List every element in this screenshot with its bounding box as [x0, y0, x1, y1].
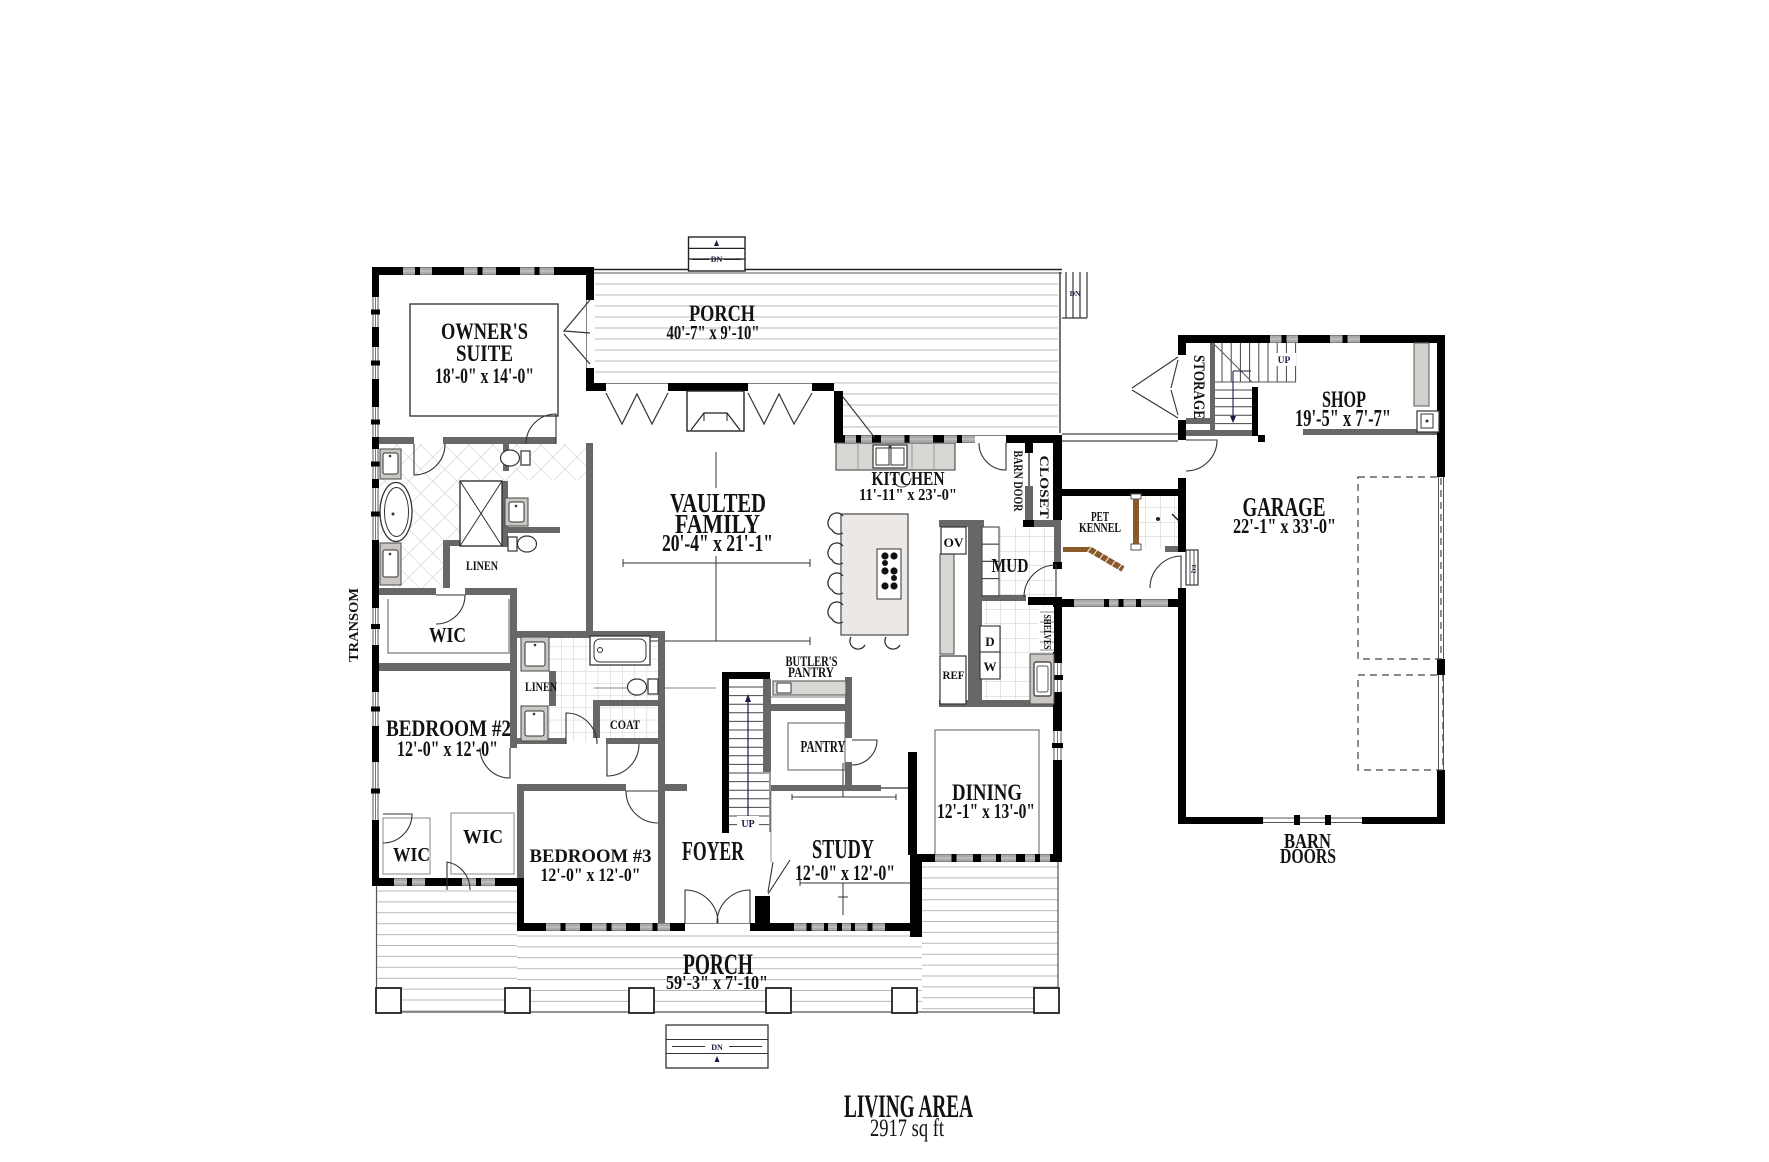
svg-text:PANTRY: PANTRY	[801, 737, 846, 756]
svg-text:COAT: COAT	[610, 717, 640, 732]
svg-text:SHELVES: SHELVES	[1041, 615, 1053, 650]
svg-text:LINEN: LINEN	[466, 558, 498, 573]
svg-text:UP: UP	[741, 819, 754, 830]
svg-text:LINEN: LINEN	[525, 679, 557, 694]
svg-text:19'-5" x 7'-7": 19'-5" x 7'-7"	[1295, 406, 1391, 432]
svg-text:BARN DOOR: BARN DOOR	[1011, 451, 1026, 512]
svg-text:STORAGE: STORAGE	[1190, 355, 1207, 419]
svg-text:UP: UP	[1278, 356, 1291, 366]
svg-text:12'-0" x 12'-0": 12'-0" x 12'-0"	[795, 860, 895, 885]
svg-text:D: D	[985, 634, 994, 649]
svg-text:11'-11" x 23'-0": 11'-11" x 23'-0"	[859, 485, 957, 504]
svg-text:WIC: WIC	[429, 623, 466, 647]
svg-text:12'-1" x 13'-0": 12'-1" x 13'-0"	[937, 799, 1035, 823]
svg-text:FOYER: FOYER	[682, 836, 744, 866]
svg-text:REF: REF	[943, 668, 965, 682]
svg-text:40'-7" x 9'-10": 40'-7" x 9'-10"	[667, 322, 760, 344]
svg-text:12'-0" x 12'-0": 12'-0" x 12'-0"	[397, 736, 498, 761]
svg-text:DN: DN	[711, 1043, 723, 1052]
svg-text:18'-0" x 14'-0": 18'-0" x 14'-0"	[435, 363, 534, 388]
svg-text:MUD: MUD	[992, 555, 1029, 577]
svg-text:W: W	[984, 659, 997, 674]
svg-text:EQ: EQ	[1190, 565, 1196, 574]
svg-text:DN: DN	[1070, 289, 1081, 298]
svg-text:20'-4" x 21'-1": 20'-4" x 21'-1"	[662, 531, 773, 557]
svg-text:12'-0" x 12'-0": 12'-0" x 12'-0"	[541, 865, 641, 886]
svg-text:WIC: WIC	[393, 844, 430, 866]
svg-text:PANTRY: PANTRY	[788, 665, 834, 681]
svg-text:DN: DN	[711, 255, 723, 264]
svg-text:WIC: WIC	[463, 826, 503, 848]
svg-text:59'-3" x 7'-10": 59'-3" x 7'-10"	[666, 972, 768, 994]
svg-text:KENNEL: KENNEL	[1079, 521, 1121, 536]
svg-text:CLOSET: CLOSET	[1037, 456, 1052, 519]
svg-text:TRANSOM: TRANSOM	[347, 588, 362, 662]
svg-text:22'-1" x 33'-0": 22'-1" x 33'-0"	[1233, 514, 1336, 538]
svg-text:2917 sq ft: 2917 sq ft	[870, 1115, 944, 1142]
svg-text:BEDROOM #3: BEDROOM #3	[530, 846, 652, 867]
svg-text:OV: OV	[944, 535, 965, 550]
svg-text:DOORS: DOORS	[1280, 844, 1336, 868]
